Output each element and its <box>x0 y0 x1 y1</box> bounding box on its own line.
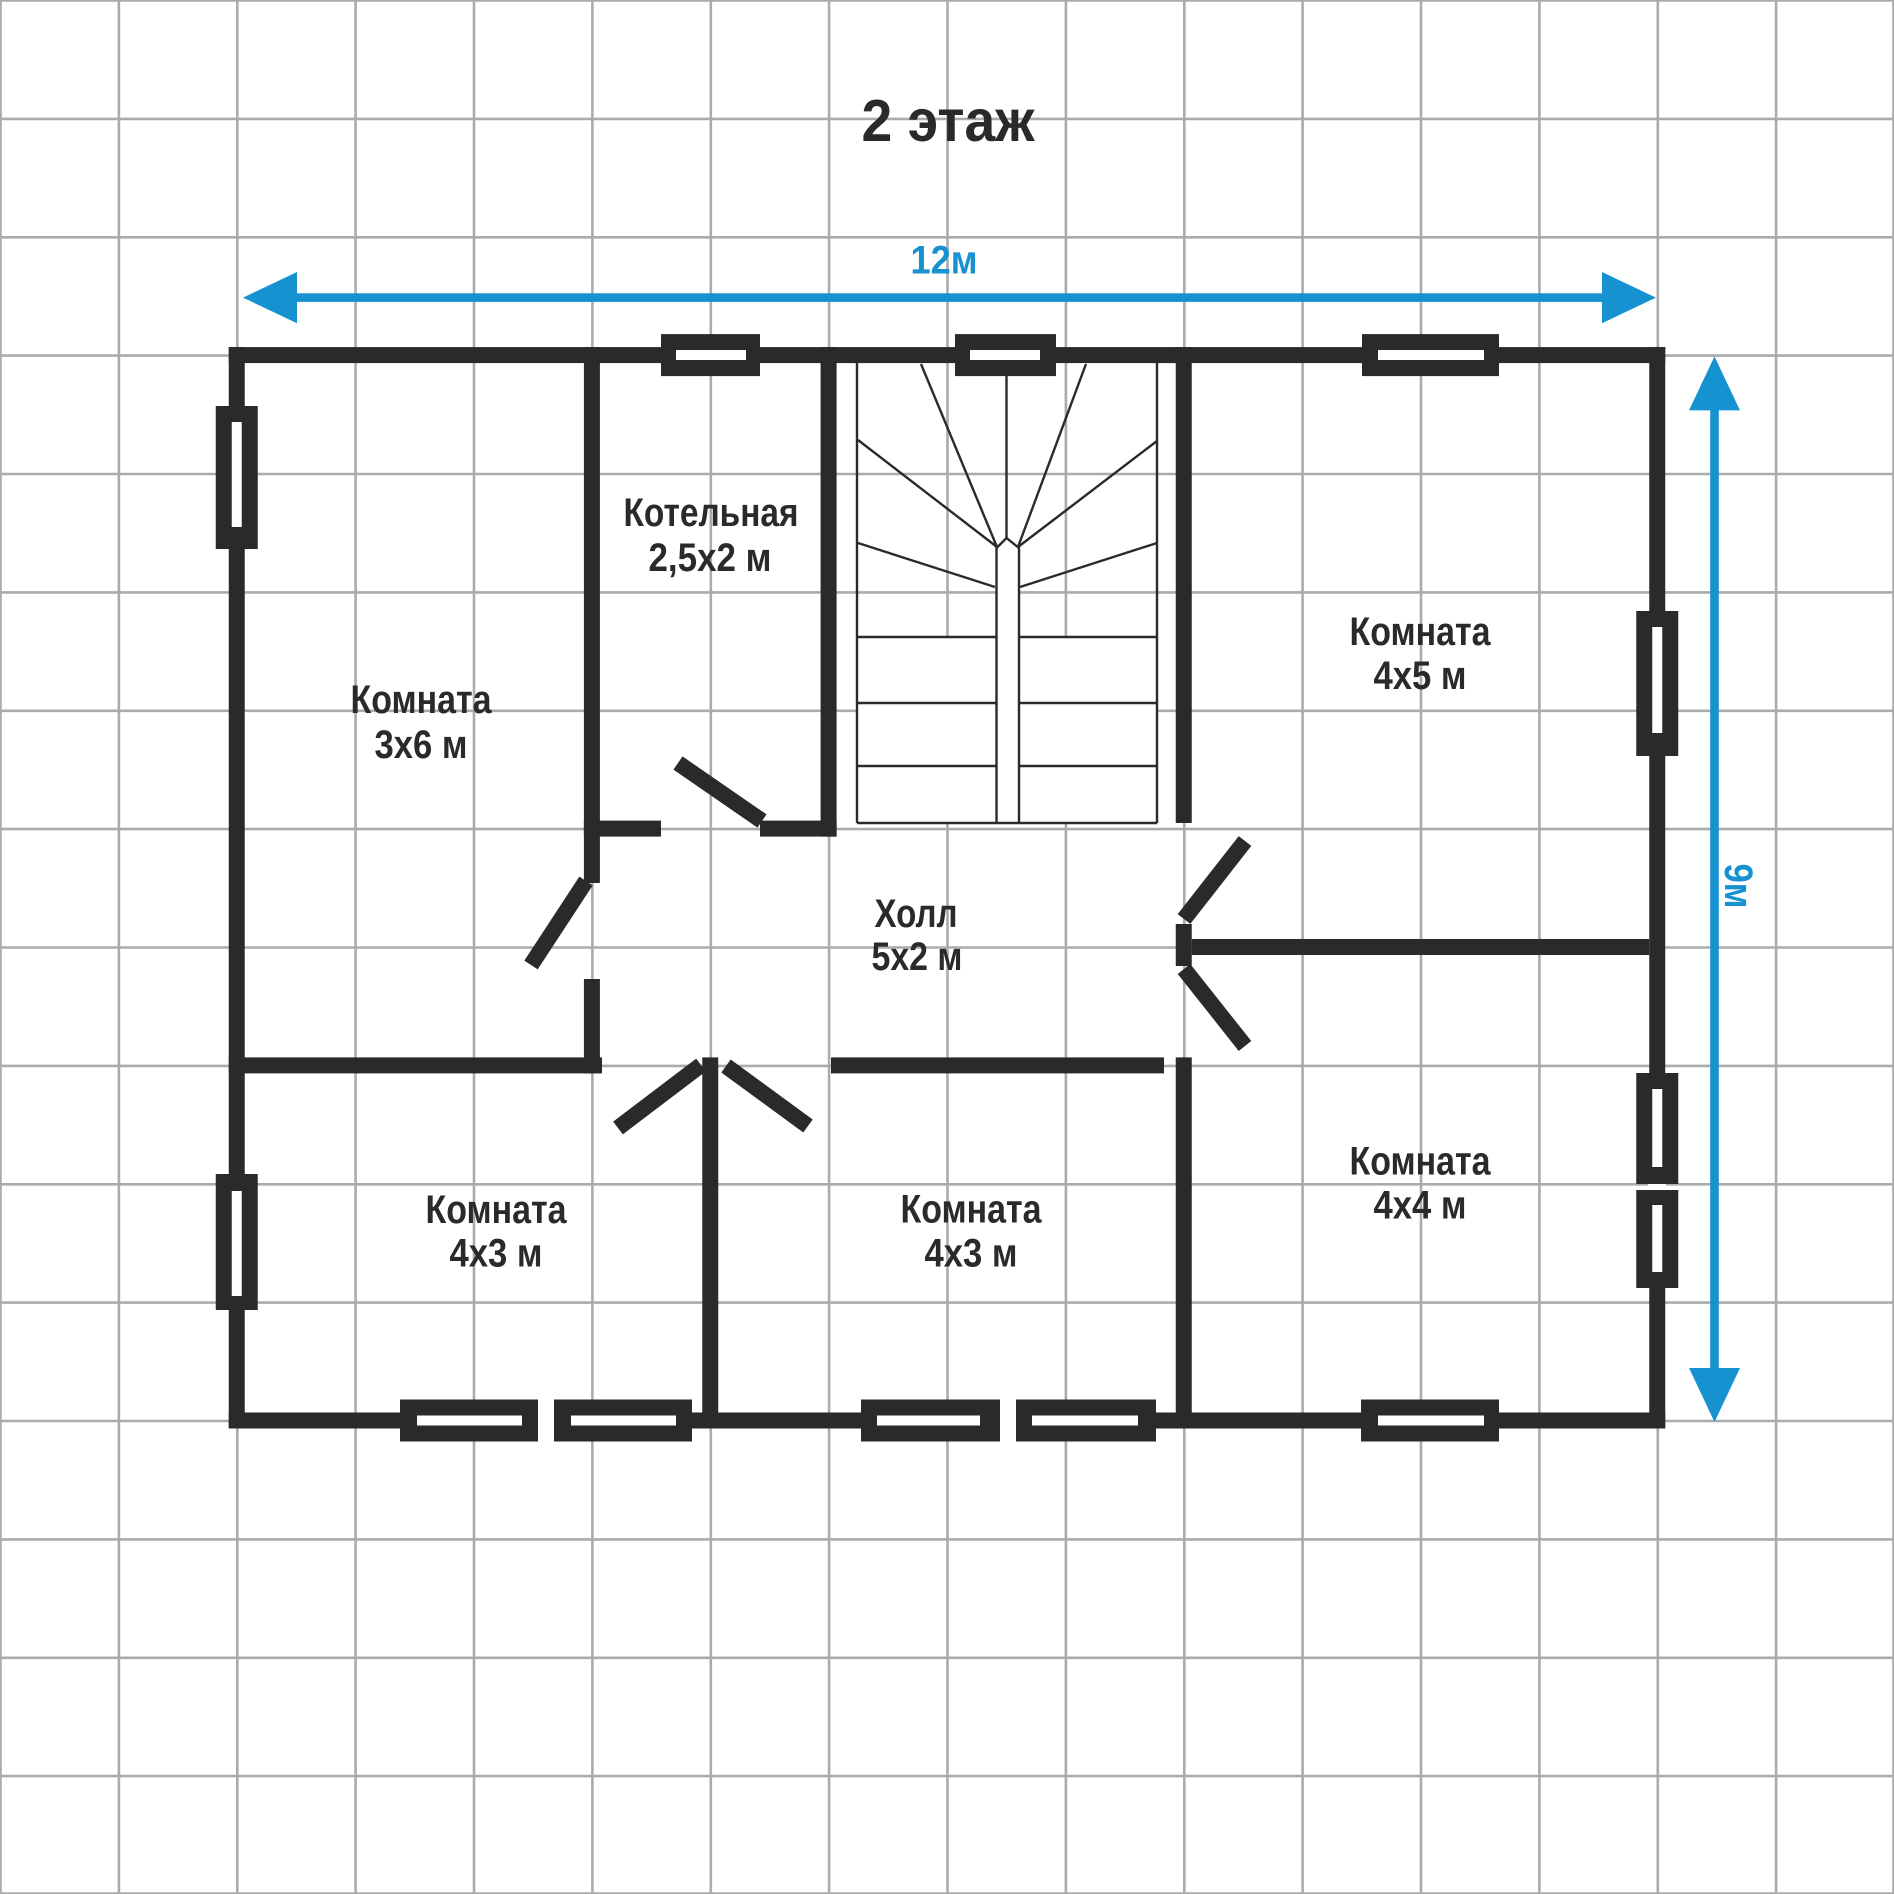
svg-text:4х4 м: 4х4 м <box>1374 1184 1467 1228</box>
svg-text:Комната: Комната <box>426 1188 568 1232</box>
svg-text:2 этаж: 2 этаж <box>862 88 1036 154</box>
svg-text:Комната: Комната <box>1350 1140 1492 1184</box>
svg-text:4х3 м: 4х3 м <box>925 1232 1018 1276</box>
svg-text:3х6 м: 3х6 м <box>375 723 468 767</box>
svg-text:5х2 м: 5х2 м <box>872 935 963 979</box>
svg-text:Комната: Комната <box>1350 610 1492 654</box>
svg-text:Комната: Комната <box>901 1188 1043 1232</box>
svg-text:Котельная: Котельная <box>624 491 799 535</box>
svg-text:9м: 9м <box>1716 864 1760 909</box>
svg-text:12м: 12м <box>911 239 978 283</box>
svg-text:4х3 м: 4х3 м <box>450 1232 543 1276</box>
svg-text:Комната: Комната <box>351 678 493 722</box>
svg-text:2,5х2 м: 2,5х2 м <box>649 536 772 580</box>
svg-text:4х5 м: 4х5 м <box>1374 654 1467 698</box>
svg-text:Холл: Холл <box>875 892 958 936</box>
